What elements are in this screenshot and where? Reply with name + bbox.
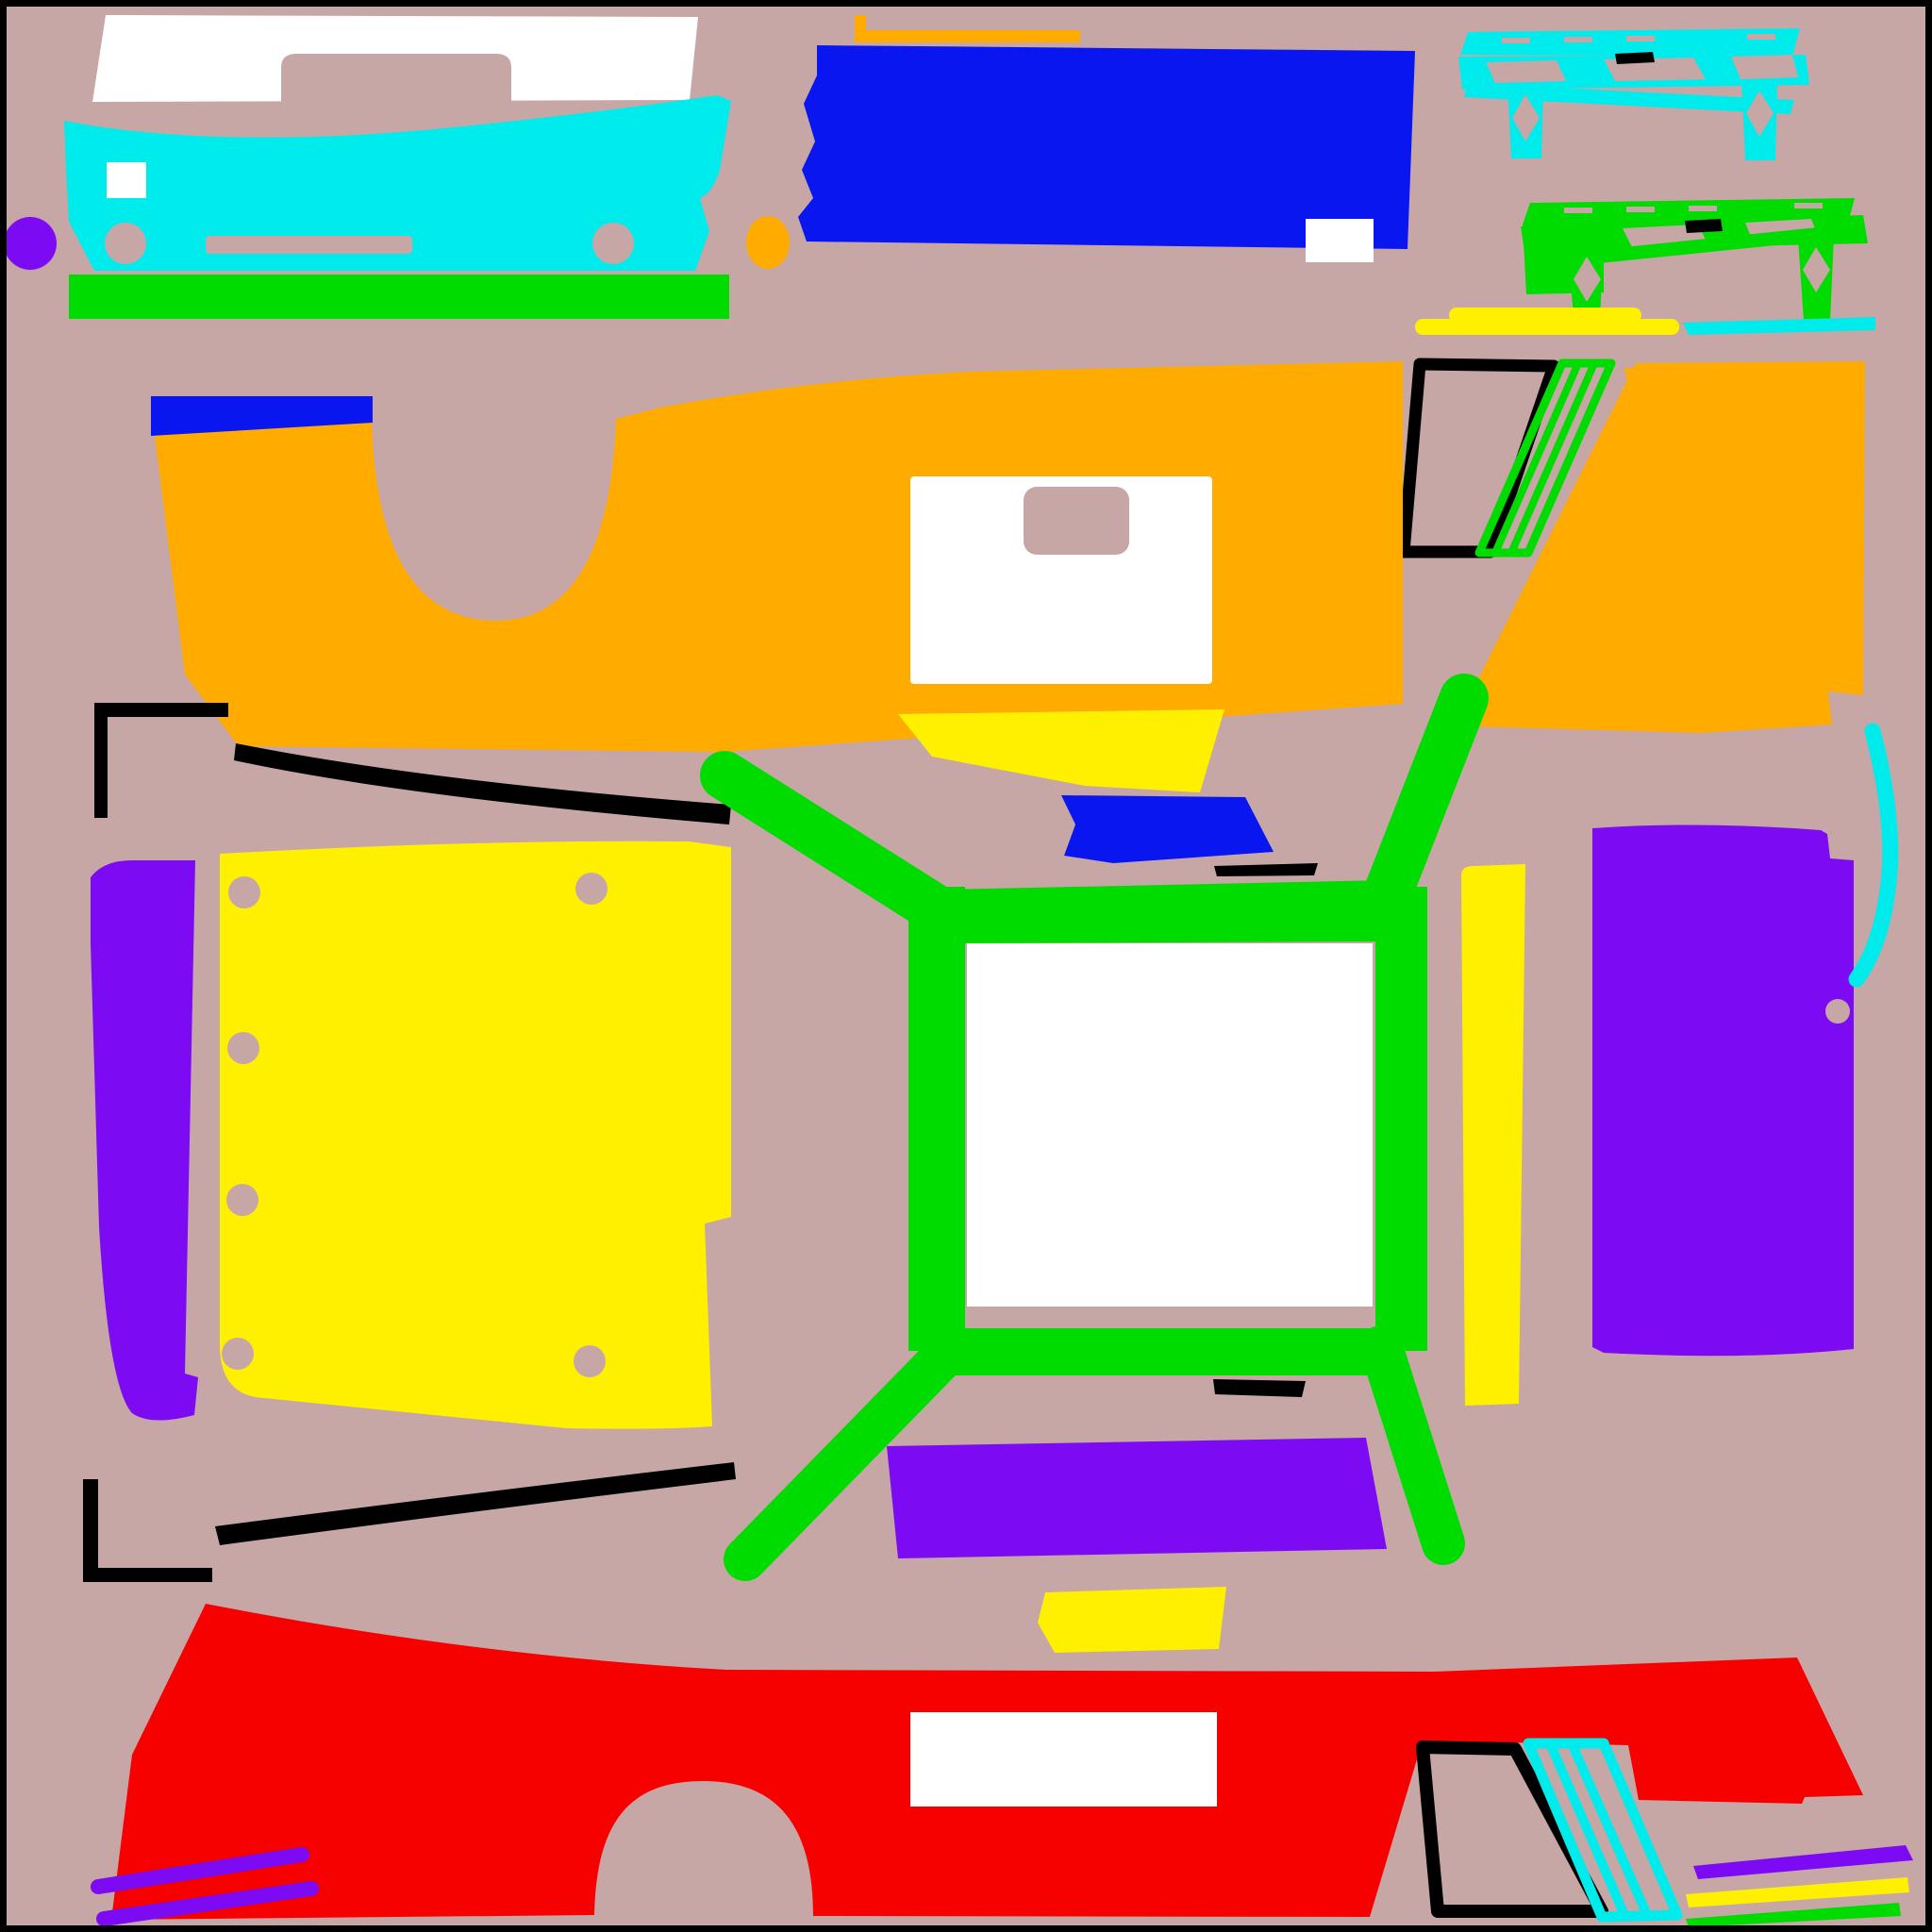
- roof-frame-band-right: [1375, 887, 1427, 1351]
- front-bumper-grille: [206, 236, 412, 254]
- roof-frame-band-top: [943, 880, 1387, 943]
- green-spoiler-slit-3: [1689, 206, 1717, 211]
- cyan-spoiler-slit-2: [1564, 37, 1592, 42]
- black-dash-center-bottom: [1213, 1379, 1306, 1397]
- green-spoiler-slit-4: [1794, 203, 1823, 208]
- hood-rivet-6: [574, 1345, 606, 1377]
- dash-panel-blue: [1061, 795, 1274, 863]
- cyan-spoiler-rail-cutout-1: [1486, 60, 1566, 83]
- door-panel-purple-right: [1592, 824, 1854, 1356]
- hood-rivet-1: [228, 876, 260, 908]
- front-bumper-plate-hole: [107, 162, 146, 198]
- cyan-spoiler-slit-3: [1626, 36, 1655, 42]
- door-patch-white: [910, 1712, 1217, 1807]
- yellow-scribble-topright-b: [1415, 319, 1679, 335]
- rear-bumper-plate-hole: [1306, 219, 1374, 262]
- car-livery-texture-atlas: [0, 0, 1932, 1932]
- green-spoiler-dash: [1685, 219, 1723, 233]
- cyan-spoiler-slit-1: [1502, 38, 1530, 43]
- green-spoiler-slit-2: [1626, 207, 1655, 212]
- hood-rivet-3: [227, 1032, 259, 1064]
- texture-canvas: [0, 0, 1932, 1932]
- hood-rivet-2: [575, 873, 608, 905]
- rocker-strip-purple-center: [887, 1438, 1387, 1558]
- hood-yellow: [220, 841, 731, 1429]
- purple-dot: [4, 217, 57, 270]
- roof-frame-band-bottom: [943, 1328, 1387, 1375]
- roof-panel-white: [967, 943, 1373, 1307]
- yellow-scribble-center: [1038, 1587, 1226, 1653]
- front-bumper-foglight-left: [105, 223, 146, 264]
- hood-rivet-4: [226, 1184, 258, 1216]
- pillar-strip-yellow-right: [1461, 864, 1525, 1406]
- roof-frame-band-left: [908, 887, 965, 1351]
- orange-dot: [746, 216, 790, 269]
- roof-window-inner-notch: [1024, 487, 1129, 555]
- front-splitter-green: [69, 275, 729, 319]
- green-spoiler-slit-1: [1564, 208, 1592, 213]
- hood-rivet-5: [222, 1338, 254, 1370]
- rear-bumper-notch: [281, 54, 511, 102]
- door-handle-hole: [1825, 999, 1850, 1024]
- cyan-spoiler-slit-4: [1747, 34, 1775, 40]
- front-bumper-foglight-right: [592, 223, 634, 264]
- rear-bumper-blue: [798, 45, 1415, 249]
- cyan-spoiler-rail-cutout-3: [1731, 55, 1798, 79]
- cyan-spoiler-dash: [1615, 52, 1655, 64]
